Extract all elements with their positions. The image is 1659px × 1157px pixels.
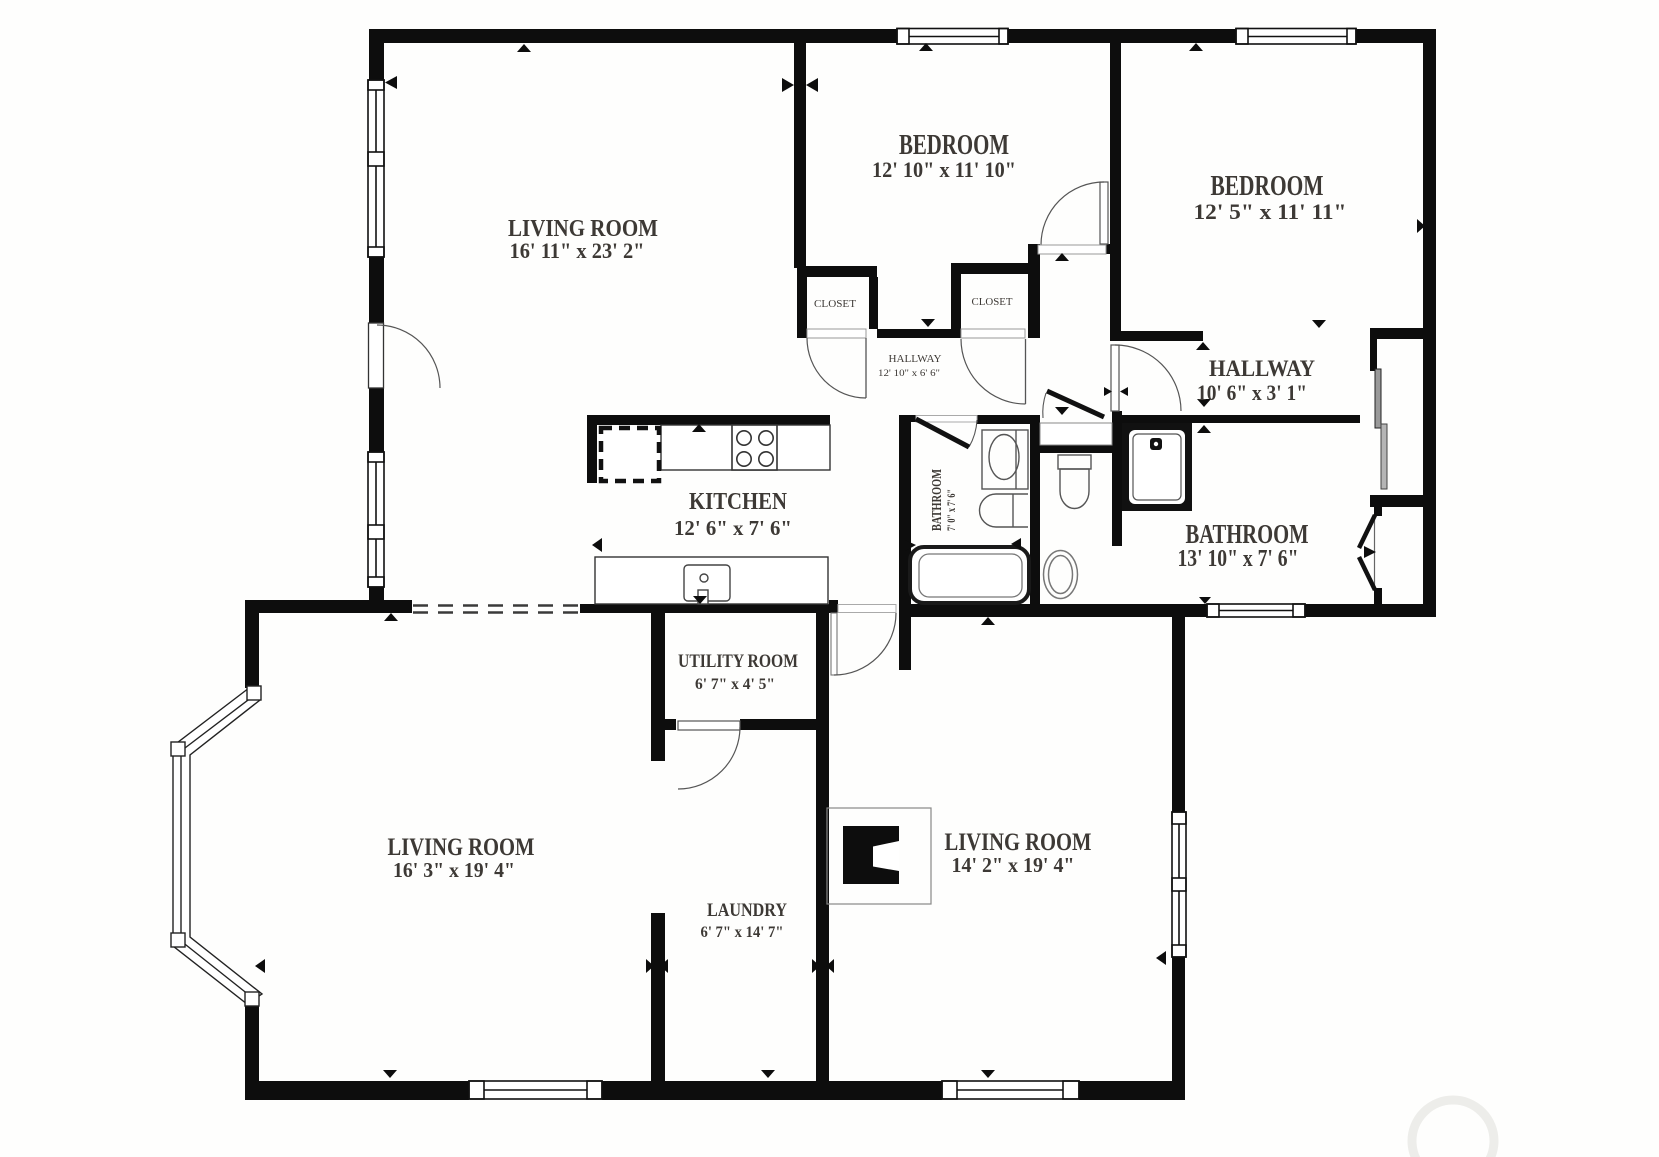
svg-text:6' 7" x 14' 7": 6' 7" x 14' 7" — [701, 924, 784, 941]
svg-text:12' 5" x 11' 11": 12' 5" x 11' 11" — [1194, 199, 1347, 224]
svg-text:HALLWAY: HALLWAY — [889, 353, 942, 365]
svg-text:UTILITY ROOM: UTILITY ROOM — [678, 651, 798, 672]
svg-text:LAUNDRY: LAUNDRY — [707, 900, 787, 921]
svg-text:CLOSET: CLOSET — [972, 297, 1014, 308]
svg-text:12' 10" x 11' 10": 12' 10" x 11' 10" — [872, 157, 1016, 182]
svg-text:LIVING ROOM: LIVING ROOM — [945, 829, 1092, 856]
svg-text:13' 10" x 7' 6": 13' 10" x 7' 6" — [1178, 546, 1299, 572]
svg-text:CLOSET: CLOSET — [814, 299, 857, 310]
svg-text:12' 6" x 7' 6": 12' 6" x 7' 6" — [674, 516, 792, 540]
svg-text:12' 10" x 6' 6": 12' 10" x 6' 6" — [878, 369, 940, 379]
svg-text:14' 2" x 19' 4": 14' 2" x 19' 4" — [952, 853, 1075, 877]
svg-text:7' 0" x 7' 6": 7' 0" x 7' 6" — [944, 489, 958, 531]
svg-text:BATHROOM: BATHROOM — [930, 469, 945, 531]
svg-text:LIVING ROOM: LIVING ROOM — [388, 834, 535, 861]
svg-text:BATHROOM: BATHROOM — [1186, 519, 1309, 549]
svg-text:6' 7" x 4' 5": 6' 7" x 4' 5" — [695, 676, 775, 693]
svg-text:16' 11" x 23' 2": 16' 11" x 23' 2" — [510, 238, 645, 263]
svg-text:10' 6" x 3' 1": 10' 6" x 3' 1" — [1197, 380, 1307, 405]
svg-text:16' 3" x 19' 4": 16' 3" x 19' 4" — [393, 858, 515, 882]
svg-text:BEDROOM: BEDROOM — [1211, 170, 1324, 202]
svg-text:HALLWAY: HALLWAY — [1209, 356, 1315, 381]
svg-text:KITCHEN: KITCHEN — [689, 489, 788, 515]
